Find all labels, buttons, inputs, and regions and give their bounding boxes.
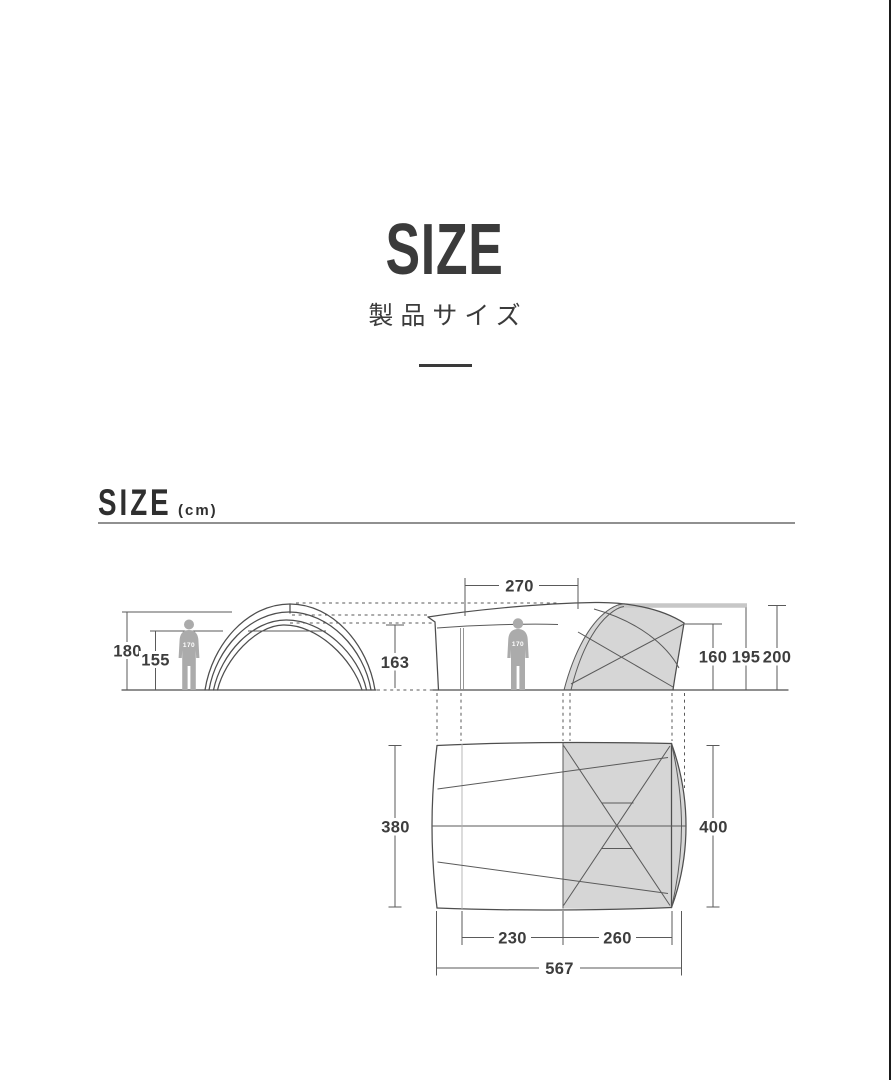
- dim-ridge-width-label: 270: [505, 578, 533, 596]
- dim-dome-height-label: 160: [699, 649, 727, 667]
- dim-inner-tent-height: 163: [379, 625, 412, 688]
- dim-max-height: 200: [761, 606, 793, 691]
- person-silhouette-side: 170: [507, 618, 528, 690]
- dim-front-inner-height-label: 155: [141, 652, 169, 670]
- front-view: 180 155 170: [111, 604, 376, 690]
- top-view: 380 400 230: [379, 742, 729, 978]
- person-height-label-side: 170: [512, 641, 524, 648]
- page-subtitle: 製品サイズ: [0, 303, 889, 329]
- dim-floor-width: 380: [379, 746, 411, 908]
- person-silhouette-front: 170: [179, 620, 200, 691]
- dim-total-length-label: 567: [545, 960, 573, 978]
- dim-edge-height-label: 195: [732, 649, 760, 667]
- page-title: SIZE: [124, 214, 764, 286]
- dim-total-length: 567: [437, 960, 682, 979]
- dim-floor-width-label: 380: [381, 819, 409, 837]
- page-right-border: [889, 0, 891, 1080]
- dim-edge-height: 195: [730, 608, 762, 691]
- title-divider: [419, 364, 472, 367]
- product-size-page: SIZE 製品サイズ SIZE (cm): [0, 0, 893, 1080]
- dim-inner-length-label: 260: [603, 930, 631, 948]
- person-height-label-front: 170: [183, 642, 195, 649]
- section-rule: [98, 522, 795, 524]
- dim-outer-width: 400: [697, 746, 729, 908]
- section-heading-text: SIZE: [98, 484, 172, 521]
- section-unit-label: (cm): [178, 503, 218, 518]
- size-diagram: 180 155 170 163: [0, 540, 893, 995]
- dim-dome-height: 160: [684, 624, 729, 690]
- dim-inner-tent-height-label: 163: [381, 654, 409, 672]
- side-view: 170 270 160 195: [428, 577, 793, 690]
- dim-front-length-label: 230: [498, 930, 526, 948]
- dim-front-outer-height-label: 180: [113, 643, 141, 661]
- dim-front-length: 230: [462, 929, 563, 948]
- dim-outer-width-label: 400: [699, 819, 727, 837]
- section-heading: SIZE (cm): [98, 484, 398, 518]
- dim-max-height-label: 200: [763, 649, 791, 667]
- dim-inner-length: 260: [563, 929, 672, 948]
